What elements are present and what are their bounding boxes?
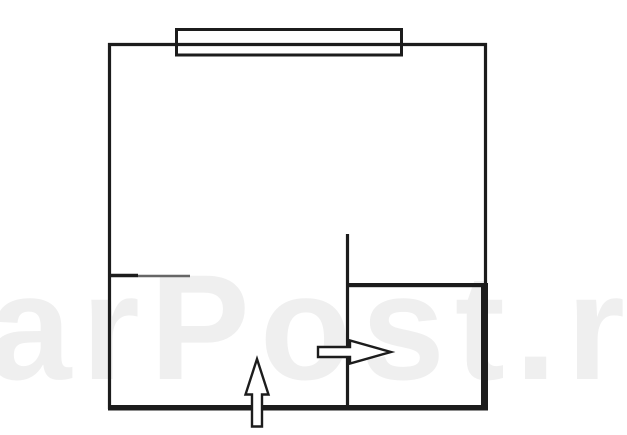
- window-double-line-icon: [177, 30, 402, 56]
- floor-plan-drawing: [0, 0, 627, 435]
- entrance-arrow-up-icon: [246, 359, 269, 427]
- outer-wall-bottom: [108, 405, 488, 411]
- floor-plan-canvas: arPost.r: [0, 0, 627, 435]
- outer-wall-right-lower-thick: [481, 283, 488, 410]
- entrance-arrow-right-icon: [318, 341, 391, 364]
- partition-wall-horizontal: [346, 283, 488, 287]
